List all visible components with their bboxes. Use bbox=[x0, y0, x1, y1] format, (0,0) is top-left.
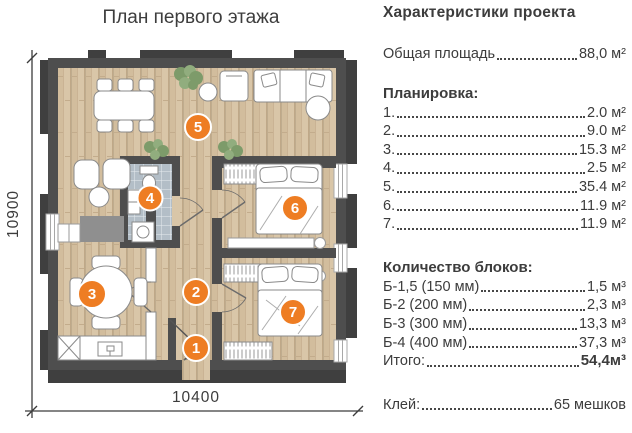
leader-dots bbox=[397, 153, 577, 155]
floor-plan-panel: План первого этажа bbox=[0, 0, 375, 433]
leader-dots bbox=[469, 328, 577, 330]
room-marker-2: 2 bbox=[183, 279, 209, 305]
leader-dots bbox=[397, 191, 577, 193]
svg-text:7: 7 bbox=[289, 304, 297, 321]
blocks-total-label: Итого: bbox=[383, 352, 425, 371]
block-row: Б-1,5 (150 мм) 1,5 м³ bbox=[383, 278, 626, 297]
total-area-label: Общая площадь bbox=[383, 45, 495, 64]
block-row-label: Б-2 (200 мм) bbox=[383, 296, 467, 315]
dining-set bbox=[94, 79, 154, 132]
floor-plan: План первого этажа bbox=[0, 0, 375, 433]
total-area-value: 88,0 м² bbox=[579, 45, 626, 64]
room-marker-1: 1 bbox=[183, 335, 209, 361]
blocks-total-row: Итого: 54,4м³ bbox=[383, 352, 626, 371]
layout-row-label: 3. bbox=[383, 141, 395, 160]
svg-text:2: 2 bbox=[192, 284, 200, 301]
layout-row: 3. 15.3 м² bbox=[383, 141, 626, 160]
blocks-section-title: Количество блоков: bbox=[383, 259, 626, 276]
glue-label: Клей: bbox=[383, 396, 420, 415]
room-marker-4: 4 bbox=[138, 186, 163, 211]
svg-text:1: 1 bbox=[192, 340, 200, 357]
block-row-label: Б-1,5 (150 мм) bbox=[383, 278, 479, 297]
layout-row: 1. 2.0 м² bbox=[383, 104, 626, 123]
block-row-value: 37,3 м³ bbox=[579, 334, 626, 353]
layout-row-label: 6. bbox=[383, 197, 395, 216]
total-area-row: Общая площадь 88,0 м² bbox=[383, 45, 626, 64]
block-row-label: Б-4 (400 мм) bbox=[383, 334, 467, 353]
leader-dots bbox=[397, 172, 585, 174]
layout-row: 6. 11.9 м² bbox=[383, 197, 626, 216]
block-row-value: 1,5 м³ bbox=[587, 278, 626, 297]
layout-row-value: 11.9 м² bbox=[580, 197, 626, 216]
specs-panel: Характеристики проекта Общая площадь 88,… bbox=[383, 4, 626, 414]
room-marker-6: 6 bbox=[282, 195, 308, 221]
layout-row-label: 7. bbox=[383, 215, 395, 234]
leader-dots bbox=[397, 135, 585, 137]
infographic-page: План первого этажа bbox=[0, 0, 632, 433]
glue-row: Клей: 65 мешков bbox=[383, 396, 626, 415]
svg-text:4: 4 bbox=[146, 190, 155, 207]
svg-text:6: 6 bbox=[291, 200, 299, 217]
block-row: Б-4 (400 мм) 37,3 м³ bbox=[383, 334, 626, 353]
leader-dots bbox=[427, 365, 579, 367]
plan-title: План первого этажа bbox=[103, 7, 280, 28]
leader-dots bbox=[397, 116, 585, 118]
layout-row-value: 2.5 м² bbox=[587, 159, 626, 178]
kitchen-counter bbox=[58, 336, 146, 360]
svg-text:3: 3 bbox=[88, 286, 96, 303]
room-marker-5: 5 bbox=[185, 114, 211, 140]
blocks-total-value: 54,4м³ bbox=[581, 352, 626, 371]
leader-dots bbox=[469, 309, 585, 311]
layout-row: 5. 35.4 м² bbox=[383, 178, 626, 197]
block-row: Б-2 (200 мм) 2,3 м³ bbox=[383, 296, 626, 315]
block-row-value: 2,3 м³ bbox=[587, 296, 626, 315]
leader-dots bbox=[469, 346, 577, 348]
block-row-value: 13,3 м³ bbox=[579, 315, 626, 334]
room-marker-3: 3 bbox=[78, 280, 106, 308]
room-marker-7: 7 bbox=[280, 299, 306, 325]
leader-dots bbox=[497, 58, 577, 60]
layout-row: 7. 11.9 м² bbox=[383, 215, 626, 234]
block-row-label: Б-3 (300 мм) bbox=[383, 315, 467, 334]
leader-dots bbox=[397, 209, 578, 211]
layout-row-label: 1. bbox=[383, 104, 395, 123]
svg-text:5: 5 bbox=[194, 119, 202, 136]
layout-row-value: 35.4 м² bbox=[579, 178, 626, 197]
layout-section-title: Планировка: bbox=[383, 85, 626, 102]
layout-row-value: 11.9 м² bbox=[580, 215, 626, 234]
glue-value: 65 мешков bbox=[554, 396, 626, 415]
layout-row-label: 5. bbox=[383, 178, 395, 197]
layout-row-label: 2. bbox=[383, 122, 395, 141]
layout-row-value: 9.0 м² bbox=[587, 122, 626, 141]
specs-title: Характеристики проекта bbox=[383, 4, 626, 22]
layout-row: 4. 2.5 м² bbox=[383, 159, 626, 178]
layout-row-value: 15.3 м² bbox=[579, 141, 626, 160]
dimension-width-label: 10400 bbox=[172, 389, 220, 406]
block-row: Б-3 (300 мм) 13,3 м³ bbox=[383, 315, 626, 334]
leader-dots bbox=[481, 290, 585, 292]
layout-row-value: 2.0 м² bbox=[587, 104, 626, 123]
dimension-height-label: 10900 bbox=[5, 190, 22, 238]
leader-dots bbox=[422, 408, 552, 410]
leader-dots bbox=[397, 228, 578, 230]
layout-row: 2. 9.0 м² bbox=[383, 122, 626, 141]
layout-row-label: 4. bbox=[383, 159, 395, 178]
